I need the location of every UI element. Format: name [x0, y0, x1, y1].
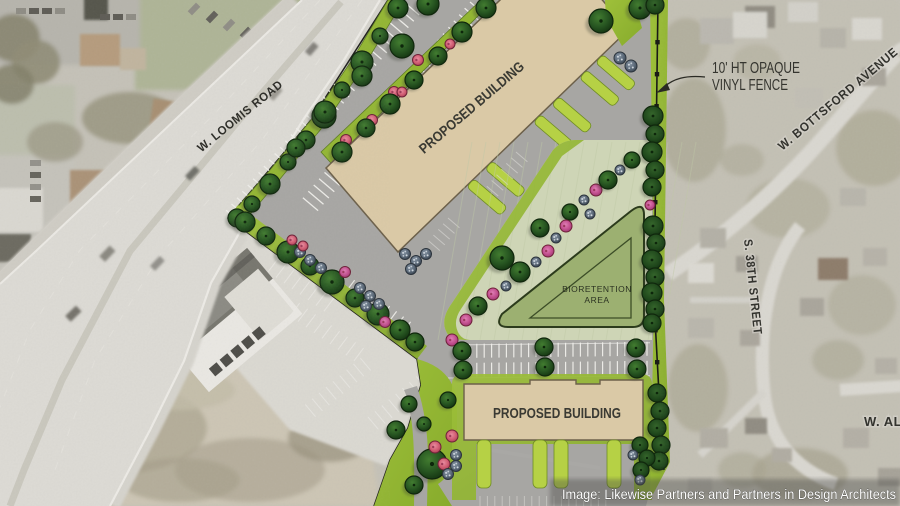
svg-text:PROPOSED BUILDING: PROPOSED BUILDING [493, 405, 621, 422]
svg-text:10' HT OPAQUE: 10' HT OPAQUE [712, 60, 800, 77]
svg-text:AREA: AREA [584, 295, 609, 305]
svg-text:BIORETENTION: BIORETENTION [562, 284, 632, 294]
svg-text:VINYL FENCE: VINYL FENCE [712, 77, 788, 94]
svg-text:W. ALL: W. ALL [864, 414, 900, 429]
svg-text:Image: Likewise Partners and P: Image: Likewise Partners and Partners in… [562, 486, 896, 502]
